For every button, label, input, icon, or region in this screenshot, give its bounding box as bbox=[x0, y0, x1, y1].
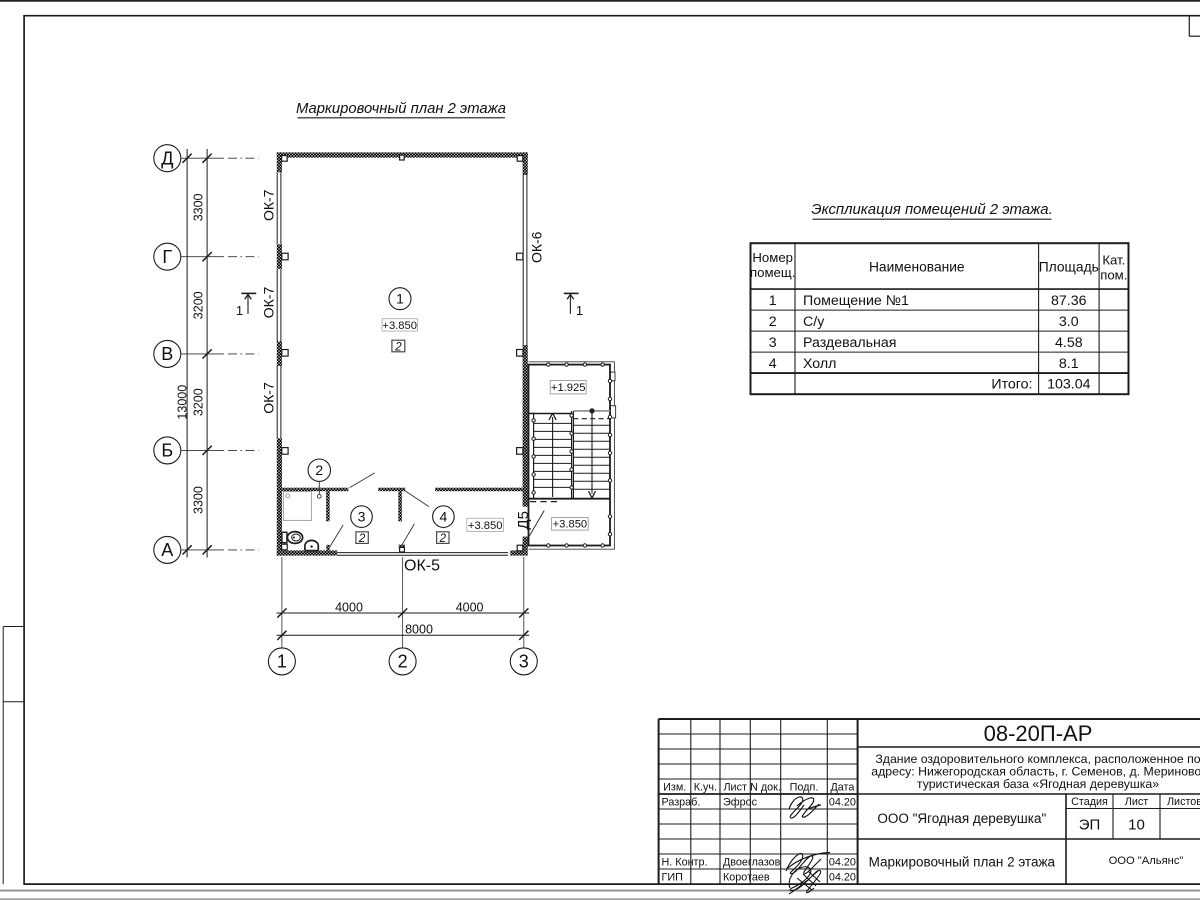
svg-text:+3.850: +3.850 bbox=[553, 519, 588, 531]
svg-text:2: 2 bbox=[439, 533, 447, 545]
svg-text:ОК-7: ОК-7 bbox=[260, 287, 276, 319]
svg-text:Н. Контр.: Н. Контр. bbox=[662, 856, 708, 868]
svg-text:Помещение №1: Помещение №1 bbox=[803, 293, 909, 309]
svg-text:Дата: Дата bbox=[830, 781, 854, 793]
svg-text:ОК-5: ОК-5 bbox=[404, 557, 440, 574]
svg-text:туристическая база «Ягодная де: туристическая база «Ягодная деревушка» bbox=[917, 777, 1159, 791]
svg-text:Площадь: Площадь bbox=[1039, 260, 1099, 275]
svg-text:4000: 4000 bbox=[456, 600, 484, 614]
svg-text:1: 1 bbox=[277, 652, 287, 672]
svg-text:13000: 13000 bbox=[176, 385, 190, 420]
svg-text:Экспликация помещений 2 этажа.: Экспликация помещений 2 этажа. bbox=[811, 202, 1052, 218]
svg-text:Д5: Д5 bbox=[515, 511, 532, 530]
svg-text:+3.850: +3.850 bbox=[468, 520, 503, 532]
svg-text:Стадия: Стадия bbox=[1071, 796, 1108, 808]
svg-text:Лист: Лист bbox=[723, 781, 747, 793]
svg-text:Эфрос: Эфрос bbox=[723, 796, 758, 808]
svg-text:4: 4 bbox=[440, 509, 448, 525]
svg-text:Двоеглазов: Двоеглазов bbox=[723, 856, 781, 868]
svg-text:1: 1 bbox=[576, 303, 583, 318]
svg-text:ООО "Альянс": ООО "Альянс" bbox=[1109, 855, 1184, 867]
svg-text:4000: 4000 bbox=[335, 600, 363, 614]
svg-text:помещ.: помещ. bbox=[750, 265, 795, 280]
svg-text:Холл: Холл bbox=[803, 356, 836, 372]
svg-text:3200: 3200 bbox=[192, 388, 206, 416]
svg-text:3: 3 bbox=[519, 652, 529, 672]
svg-text:Раздевальная: Раздевальная bbox=[803, 335, 896, 351]
svg-text:04.20: 04.20 bbox=[829, 796, 856, 808]
svg-text:Листов: Листов bbox=[1167, 796, 1200, 808]
svg-text:8000: 8000 bbox=[405, 623, 433, 637]
svg-text:3300: 3300 bbox=[192, 193, 206, 221]
svg-text:87.36: 87.36 bbox=[1051, 293, 1087, 309]
svg-text:8.1: 8.1 bbox=[1059, 356, 1079, 372]
svg-text:Наименование: Наименование bbox=[869, 260, 965, 275]
svg-text:04.20: 04.20 bbox=[829, 856, 856, 868]
svg-text:ГИП: ГИП bbox=[662, 871, 683, 883]
svg-text:ООО "Ягодная деревушка": ООО "Ягодная деревушка" bbox=[877, 811, 1046, 826]
svg-text:3300: 3300 bbox=[192, 486, 206, 514]
svg-text:1: 1 bbox=[769, 293, 777, 309]
svg-text:ОК-7: ОК-7 bbox=[260, 189, 276, 221]
svg-text:2: 2 bbox=[358, 533, 366, 545]
svg-text:Разраб.: Разраб. bbox=[662, 796, 701, 808]
svg-text:3: 3 bbox=[769, 335, 777, 351]
svg-text:Номер: Номер bbox=[752, 250, 793, 265]
svg-text:Д: Д bbox=[161, 148, 173, 168]
svg-text:2: 2 bbox=[315, 462, 323, 478]
svg-text:ОК-7: ОК-7 bbox=[260, 382, 276, 414]
svg-text:Коротаев: Коротаев bbox=[723, 871, 770, 883]
svg-text:Итого:: Итого: bbox=[991, 377, 1032, 393]
svg-text:04.20: 04.20 bbox=[829, 871, 856, 883]
svg-text:Маркировочный план 2 этажа: Маркировочный план 2 этажа bbox=[296, 101, 506, 117]
svg-text:4.58: 4.58 bbox=[1055, 335, 1083, 351]
svg-text:3.0: 3.0 bbox=[1059, 314, 1079, 330]
svg-text:2: 2 bbox=[769, 314, 777, 330]
svg-text:С/у: С/у bbox=[803, 314, 825, 330]
svg-text:3200: 3200 bbox=[192, 291, 206, 319]
svg-text:ЭП: ЭП bbox=[1079, 817, 1101, 834]
svg-text:Подп.: Подп. bbox=[790, 781, 819, 793]
svg-text:10: 10 bbox=[1128, 817, 1145, 834]
svg-text:Кат.: Кат. bbox=[1102, 253, 1125, 268]
svg-text:N док.: N док. bbox=[750, 781, 781, 793]
svg-text:1: 1 bbox=[396, 291, 404, 307]
svg-text:Маркировочный план 2 этажа: Маркировочный план 2 этажа bbox=[869, 854, 1056, 869]
svg-text:1: 1 bbox=[236, 303, 243, 318]
svg-text:пом.: пом. bbox=[1100, 268, 1127, 283]
svg-text:К.уч.: К.уч. bbox=[694, 781, 717, 793]
svg-text:2: 2 bbox=[398, 652, 408, 672]
svg-text:ОК-6: ОК-6 bbox=[528, 231, 544, 263]
svg-text:3: 3 bbox=[358, 509, 366, 525]
svg-text:4: 4 bbox=[769, 356, 777, 372]
svg-text:+3.850: +3.850 bbox=[382, 320, 417, 332]
svg-text:+1.925: +1.925 bbox=[551, 382, 586, 394]
svg-text:Б: Б bbox=[161, 441, 173, 461]
svg-text:103.04: 103.04 bbox=[1047, 377, 1091, 393]
svg-text:Лист: Лист bbox=[1125, 796, 1149, 808]
svg-text:2: 2 bbox=[394, 341, 402, 353]
svg-text:Изм.: Изм. bbox=[663, 781, 686, 793]
svg-text:В: В bbox=[161, 344, 173, 364]
svg-text:08-20П-АР: 08-20П-АР bbox=[984, 721, 1093, 746]
svg-text:Г: Г bbox=[162, 247, 172, 267]
svg-text:А: А bbox=[161, 540, 173, 560]
